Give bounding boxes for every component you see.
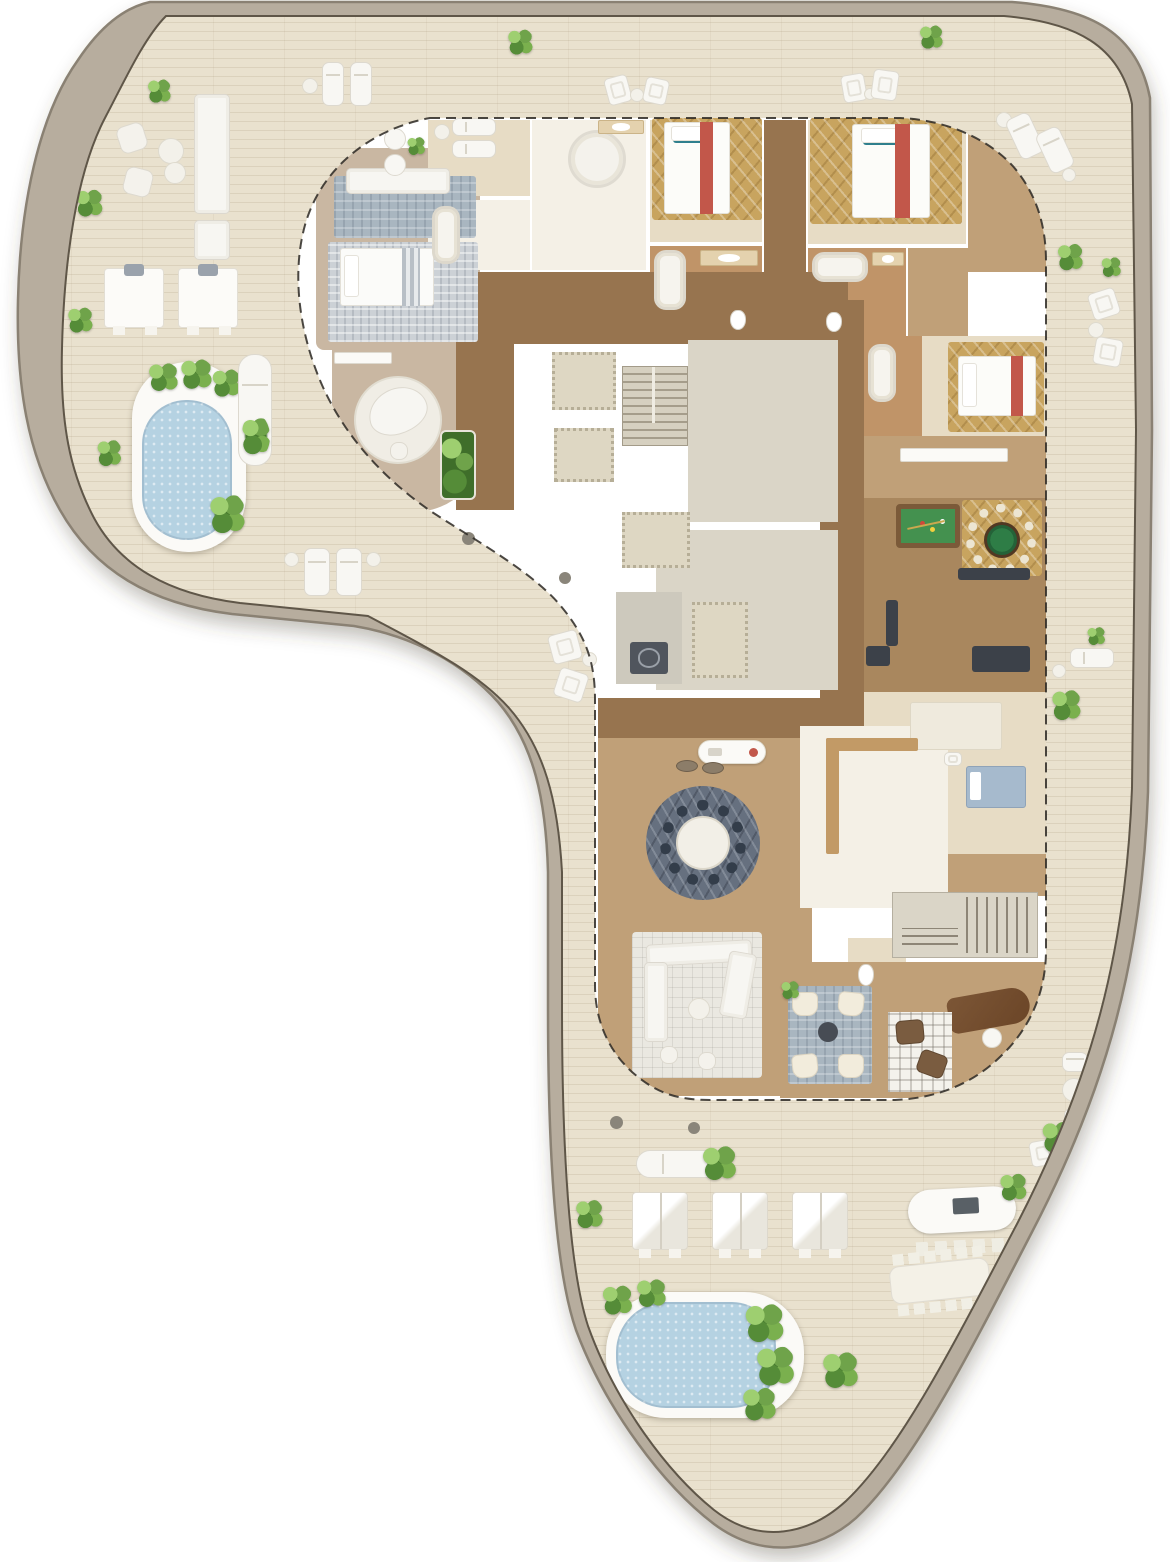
chair-sq <box>603 73 633 106</box>
plant <box>66 306 94 334</box>
chair-sq <box>1092 336 1124 368</box>
side-table <box>164 162 186 184</box>
pouf <box>114 120 149 155</box>
floor-plan-canvas <box>0 0 1170 1562</box>
chair-sq <box>840 72 868 104</box>
plant <box>1050 688 1082 722</box>
lounger-h <box>452 140 496 158</box>
palm <box>820 1350 860 1390</box>
dot <box>559 572 571 584</box>
plant <box>1086 626 1106 646</box>
lounger-v <box>322 62 344 106</box>
chair-sq <box>547 629 584 666</box>
side-table <box>158 138 184 164</box>
plant <box>208 492 246 536</box>
side-table <box>284 552 299 567</box>
dot <box>610 1116 623 1129</box>
plant <box>918 24 944 50</box>
plant <box>178 358 214 390</box>
chair-sq <box>552 666 590 704</box>
plant <box>146 78 172 104</box>
chair-sq <box>1086 286 1121 321</box>
terrace-sofa <box>194 94 230 214</box>
outdoor-dining-table <box>888 1257 991 1305</box>
pouf <box>121 165 155 199</box>
plant <box>242 414 270 458</box>
side-table <box>1052 664 1066 678</box>
side-table <box>366 552 381 567</box>
sofa <box>194 220 230 260</box>
plant <box>634 1278 668 1308</box>
plant <box>600 1284 634 1316</box>
chair-sq <box>642 76 671 106</box>
plant <box>574 1198 604 1230</box>
table-umbrella <box>104 268 164 328</box>
plant <box>1100 256 1122 278</box>
dot <box>462 532 475 545</box>
chair-sq <box>870 68 900 101</box>
plant <box>740 1386 778 1422</box>
plant <box>506 28 534 56</box>
cabana <box>712 1192 768 1250</box>
lounger-h <box>1070 648 1114 668</box>
cabana <box>632 1192 688 1250</box>
lounger-v <box>350 62 372 106</box>
side-table <box>302 78 318 94</box>
plant <box>742 1302 786 1344</box>
plant <box>754 1344 796 1388</box>
plant <box>96 438 122 468</box>
lounger-h <box>452 118 496 136</box>
plant <box>700 1144 738 1182</box>
plant <box>998 1172 1028 1202</box>
table-umbrella <box>178 268 238 328</box>
lounger-v <box>304 548 330 596</box>
side-table <box>1062 168 1076 182</box>
plant <box>1056 242 1084 272</box>
side-table <box>434 124 450 140</box>
side-table <box>1088 322 1104 338</box>
side-table <box>582 652 597 667</box>
plant <box>146 362 180 392</box>
lounger-v <box>336 548 362 596</box>
cabana <box>792 1192 848 1250</box>
dot <box>688 1122 700 1134</box>
